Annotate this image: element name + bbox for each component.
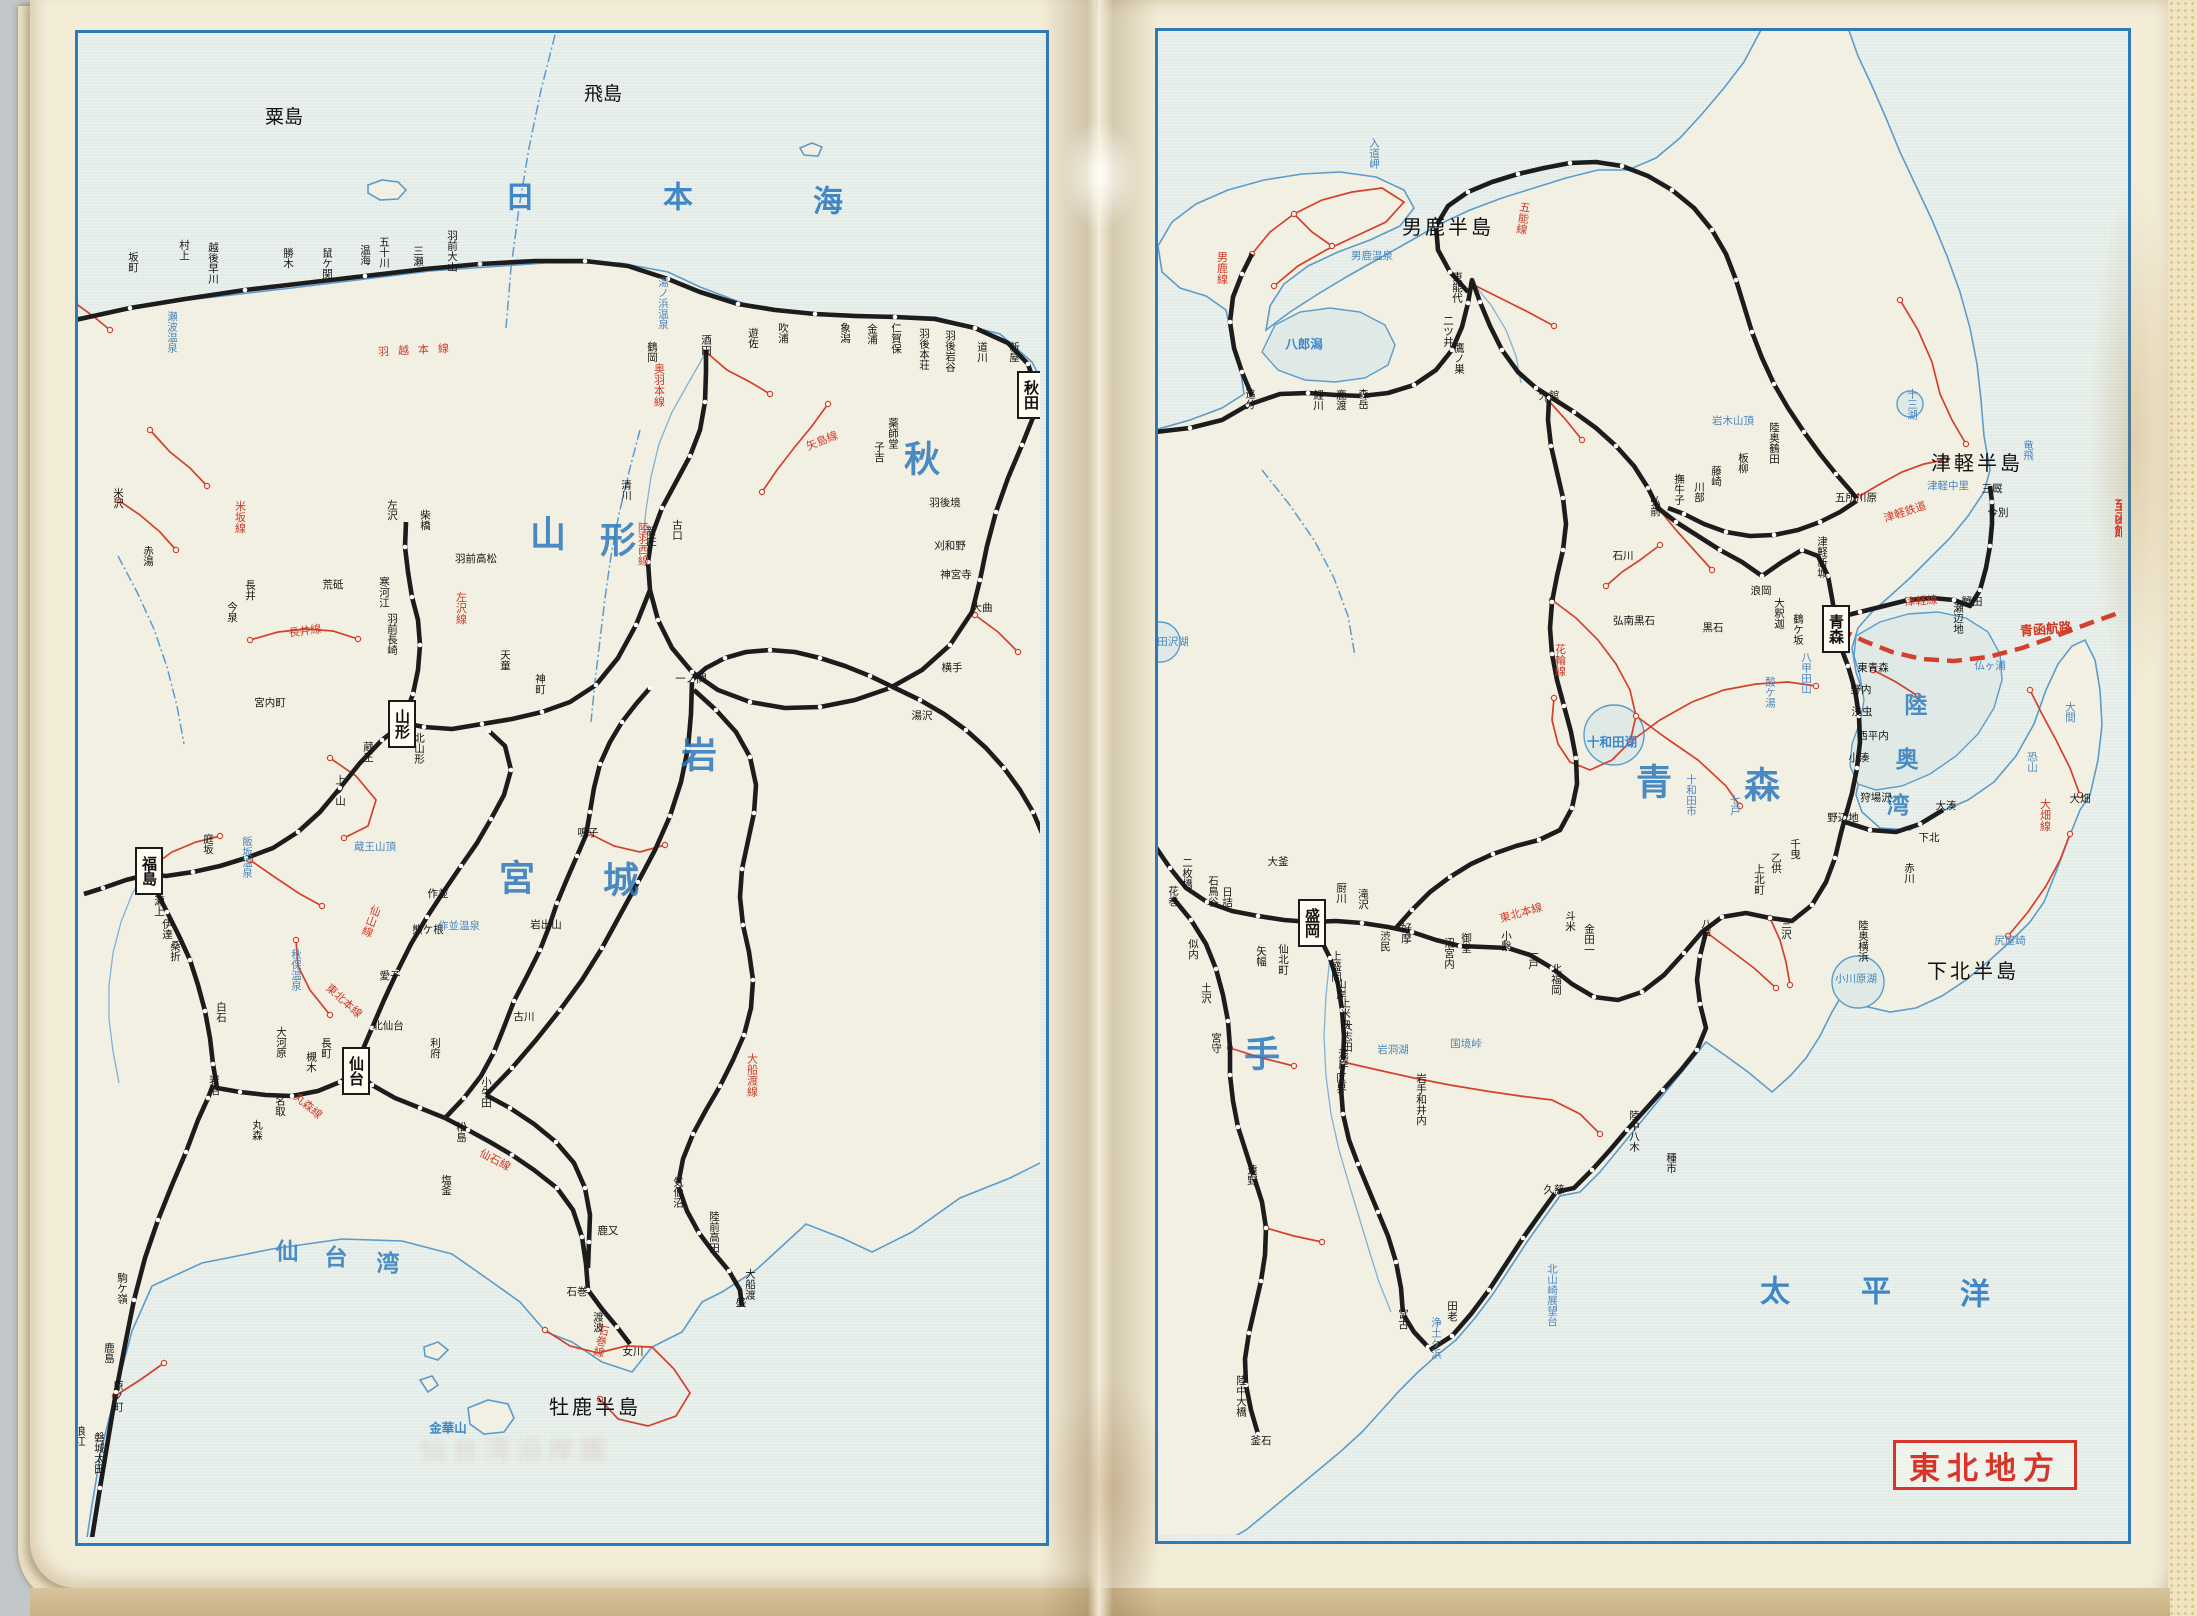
map-label: 庭坂	[202, 833, 214, 856]
station-dot	[1031, 810, 1036, 815]
map-label: 大志田	[1341, 1019, 1353, 1051]
station-dot	[1002, 766, 1007, 771]
map-label: 台	[325, 1244, 348, 1271]
station-dot	[1026, 362, 1031, 367]
branch-terminus	[1329, 243, 1334, 248]
map-label: 野辺地	[1827, 811, 1859, 824]
station-dot	[1394, 1260, 1399, 1265]
map-label: 大間	[2064, 701, 2076, 724]
map-label: 恐山	[2026, 752, 2038, 773]
station-dot	[1410, 908, 1415, 913]
map-label: 洋	[1960, 1278, 1990, 1313]
station-dot	[1988, 544, 1993, 549]
map-label: 瀬波温泉	[166, 310, 178, 353]
map-label: 金田一	[1583, 922, 1595, 954]
map-label: 鹿又	[598, 1224, 619, 1237]
map-label: 区界	[1335, 1073, 1347, 1095]
station-dot	[1466, 190, 1471, 195]
map-label: 岩沼	[208, 1074, 220, 1097]
map-label: 酸ケ湯	[1764, 675, 1776, 708]
branch-terminus	[327, 755, 332, 760]
branch-terminus	[1551, 323, 1556, 328]
map-label: 岩洞湖	[1377, 1043, 1409, 1056]
station-dot	[620, 720, 625, 725]
branch-terminus	[1319, 1239, 1324, 1244]
station-dot	[893, 315, 898, 320]
branch-terminus	[2067, 831, 2072, 836]
map-label: 岩手和井内	[1415, 1072, 1427, 1126]
map-label: 五所川原	[1835, 492, 1877, 504]
map-label: 白石	[215, 1001, 227, 1023]
map-label: 作並	[428, 887, 449, 900]
map-label: 男鹿半島	[1402, 215, 1494, 239]
map-label: 岩	[681, 736, 717, 777]
branch-terminus	[1633, 713, 1638, 718]
station-dot	[1168, 866, 1173, 871]
map-label: 遠野	[1246, 1164, 1258, 1186]
map-label: 北山崎展望台	[1546, 1264, 1558, 1328]
map-label: 五十川	[378, 236, 390, 268]
map-label: 渡波	[592, 1311, 604, 1334]
map-label: 下北半島	[1927, 959, 2019, 983]
map-label: 愛子	[380, 969, 401, 982]
map-label: 好摩	[1400, 923, 1412, 945]
station-dot	[425, 915, 430, 920]
map-label: 作並温泉	[438, 919, 480, 932]
station-dot	[1259, 1279, 1264, 1284]
station-dot	[1695, 1048, 1700, 1053]
station-dot	[973, 326, 978, 331]
map-label: 小牛田	[480, 1076, 492, 1108]
map-label: 青函航路	[2019, 619, 2073, 640]
map-label: 柴橋	[419, 509, 431, 532]
map-label: 形	[600, 521, 636, 562]
map-label: 秋	[904, 440, 940, 481]
station-dot	[1978, 588, 1983, 593]
branch-terminus	[319, 903, 324, 908]
map-label: 丸森	[251, 1119, 263, 1142]
map-label: 利府	[429, 1038, 441, 1060]
map-label: 城	[603, 861, 639, 902]
map-label: 陸奥鶴田	[1768, 421, 1780, 464]
station-dot	[1516, 172, 1521, 177]
map-label: 石川	[1613, 550, 1634, 562]
branch-terminus	[825, 401, 830, 406]
branch-terminus	[1291, 1063, 1296, 1068]
map-label: 浄土ケ浜	[1430, 1316, 1442, 1360]
station-dot	[128, 306, 133, 311]
branch-terminus	[341, 835, 346, 840]
branch-terminus	[1015, 649, 1020, 654]
city-box-label: 秋田	[1022, 379, 1040, 411]
railway-map-svg: 日本海仙台湾秋山形宮城岩粟島飛島牡鹿半島羽越本線奥羽本線米坂線長井線左沢線仙山線…	[0, 0, 2197, 1616]
map-label: 似内	[1187, 939, 1199, 961]
station-dot	[132, 1298, 137, 1303]
station-dot	[1376, 1210, 1381, 1215]
map-label: 浪江	[74, 1425, 86, 1447]
station-dot	[558, 1008, 563, 1013]
map-label: 黒石	[1703, 622, 1724, 634]
map-label: 太	[1760, 1275, 1791, 1310]
map-label: 花輪線	[1554, 643, 1567, 676]
map-label: 藤崎	[1710, 466, 1722, 487]
map-label: 左沢	[386, 499, 398, 522]
map-label: 小繋	[1500, 931, 1512, 952]
station-dot	[459, 864, 464, 869]
map-label: 松島	[455, 1121, 467, 1144]
map-label: 土沢	[1200, 982, 1212, 1005]
station-dot	[243, 288, 248, 293]
station-dot	[1818, 520, 1823, 525]
map-label: 滝沢	[1357, 889, 1369, 911]
map-label: 一ノ関	[675, 673, 707, 685]
map-label: 塩釜	[440, 1174, 452, 1196]
map-label: 気仙沼	[672, 1175, 684, 1208]
branch-terminus	[72, 300, 77, 305]
landmass	[800, 143, 822, 156]
station-dot	[492, 1050, 497, 1055]
station-dot	[156, 1218, 161, 1223]
station-dot	[964, 728, 969, 733]
map-label: 川部	[1693, 482, 1705, 504]
map-label: 森	[1744, 766, 1781, 807]
map-label: 野内	[1851, 683, 1872, 696]
map-label: 湯沢	[912, 709, 933, 722]
station-dot	[1834, 472, 1839, 477]
map-label: 刈和野	[934, 539, 966, 552]
station-dot	[1189, 918, 1194, 923]
station-dot	[1614, 444, 1619, 449]
map-label: 道川	[976, 341, 988, 363]
station-dot	[1682, 951, 1687, 956]
station-dot	[489, 817, 494, 822]
station-dot	[691, 1132, 696, 1137]
map-label: 蔵王	[362, 741, 374, 763]
map-label: 二枚橋	[1181, 857, 1193, 889]
station-dot	[1240, 370, 1245, 375]
map-label: 羽前大山	[446, 230, 458, 272]
station-dot	[480, 722, 485, 727]
map-label: 弘前	[1649, 496, 1661, 518]
branch-terminus	[542, 1327, 547, 1332]
branch-terminus	[204, 483, 209, 488]
scanned-atlas-spread: { "stamp_label": "東北地方", "map": { "label…	[0, 0, 2197, 1616]
map-label: 女川	[623, 1345, 644, 1358]
station-dot	[868, 674, 873, 679]
station-dot	[403, 545, 408, 550]
station-dot	[1772, 382, 1777, 387]
station-dot	[1572, 410, 1577, 415]
station-dot	[1562, 704, 1567, 709]
station-dot	[418, 643, 423, 648]
map-label: 鳴子	[578, 826, 599, 839]
branch-terminus	[107, 327, 112, 332]
station-dot	[948, 643, 953, 648]
station-dot	[296, 830, 301, 835]
station-dot	[1574, 756, 1579, 761]
station-dot	[703, 400, 708, 405]
map-label: 津軽中里	[1927, 479, 1969, 492]
map-label: 神宮寺	[940, 568, 972, 581]
station-dot	[338, 1080, 343, 1085]
landmass	[424, 1342, 448, 1360]
station-dot	[1214, 967, 1219, 972]
station-dot	[588, 810, 593, 815]
map-label: 飯坂温泉	[241, 835, 253, 878]
map-label: 手	[1244, 1035, 1280, 1076]
map-label: 津軽新城	[1816, 536, 1828, 579]
map-label: 大湊	[1936, 799, 1958, 812]
station-dot	[1226, 1019, 1231, 1024]
station-dot	[1640, 990, 1645, 995]
map-label: 陸前高田	[708, 1210, 720, 1253]
city-box-label: 山形	[393, 709, 411, 740]
map-label: 長井	[244, 580, 256, 602]
map-label: 古川	[514, 1010, 535, 1023]
map-label: 撫牛子	[1673, 472, 1685, 504]
map-label: 金浦	[866, 323, 878, 346]
branch-terminus	[759, 489, 764, 494]
map-label: 平	[1861, 1275, 1891, 1310]
map-label: 羽後境	[929, 496, 961, 509]
station-dot	[1846, 664, 1851, 669]
station-dot	[238, 1090, 243, 1095]
map-label: 仙	[276, 1238, 299, 1265]
map-label: 十和田湖	[1587, 735, 1637, 750]
station-dot	[656, 618, 661, 623]
map-label: 田老	[1446, 1301, 1458, 1322]
map-label: 男鹿温泉	[1351, 249, 1393, 262]
station-dot	[1760, 574, 1765, 579]
station-dot	[1674, 520, 1679, 525]
map-label: 駒ケ嶺	[116, 1272, 128, 1304]
branch-terminus	[1963, 441, 1968, 446]
station-dot	[752, 811, 757, 816]
map-label: 田	[1104, 404, 1140, 445]
station-dot	[634, 623, 639, 628]
station-dot	[1570, 806, 1575, 811]
station-dot	[512, 999, 517, 1004]
map-label: 米沢	[112, 487, 124, 510]
station-dot	[741, 923, 746, 928]
map-label: 岩木山頂	[1712, 414, 1754, 427]
station-dot	[978, 578, 983, 583]
map-label: 鶴岡	[646, 341, 658, 364]
station-dot	[1734, 278, 1739, 283]
map-label: 八戸	[1700, 919, 1712, 941]
station-dot	[1682, 512, 1687, 517]
map-label: 花巻	[1167, 885, 1179, 907]
map-label: 湾	[377, 1250, 400, 1277]
map-label: 斗米	[1564, 911, 1576, 933]
map-label: 竜飛	[2022, 439, 2034, 462]
station-dot	[994, 510, 999, 515]
map-label: 天童	[499, 650, 511, 671]
station-dot	[818, 656, 823, 661]
map-label: 酒田	[700, 334, 712, 356]
station-dot	[742, 1033, 747, 1038]
map-label: 伊達	[161, 919, 173, 940]
station-dot	[510, 1066, 515, 1071]
station-dot	[418, 1106, 423, 1111]
map-label: 十和田市	[1685, 773, 1697, 817]
station-dot	[1710, 228, 1715, 233]
station-dot	[1698, 1002, 1703, 1007]
station-dot	[1236, 1125, 1241, 1130]
station-dot	[540, 710, 545, 715]
map-label: 盛	[736, 1296, 747, 1309]
map-label: 磐城太田	[93, 1431, 105, 1474]
landmass	[420, 1376, 438, 1392]
map-label: 鷹ノ巣	[1453, 341, 1465, 374]
map-label: 津軽線	[1904, 592, 1938, 608]
station-dot	[1549, 444, 1554, 449]
station-dot	[575, 854, 580, 859]
map-label: 鹿島	[103, 1342, 115, 1365]
branch-terminus	[2027, 687, 2032, 692]
map-label: 釜石	[1251, 1434, 1272, 1447]
branch-terminus	[1271, 283, 1276, 288]
station-dot	[718, 1084, 723, 1089]
station-dot	[748, 755, 753, 760]
station-dot	[410, 595, 415, 600]
station-dot	[380, 738, 385, 743]
station-dot	[1698, 954, 1703, 959]
branch-terminus	[327, 1012, 332, 1017]
map-label: 横手	[942, 661, 963, 674]
station-dot	[1466, 301, 1471, 306]
branch-terminus	[1657, 542, 1662, 547]
station-dot	[1990, 500, 1995, 505]
station-dot	[1521, 1236, 1526, 1241]
station-dot	[697, 1231, 702, 1236]
map-label: 清川	[620, 479, 632, 501]
station-dot	[1044, 843, 1049, 848]
station-dot	[1228, 320, 1233, 325]
map-label: 東青森	[1857, 661, 1889, 674]
station-dot	[740, 867, 745, 872]
station-dot	[1537, 838, 1542, 843]
station-dot	[1228, 1073, 1233, 1078]
station-dot	[768, 648, 773, 653]
station-dot	[1768, 916, 1773, 921]
station-dot	[1772, 533, 1777, 538]
map-label: 羽前長崎	[386, 613, 398, 655]
station-dot	[370, 1083, 375, 1088]
city-box-label: 仙台	[347, 1055, 365, 1087]
map-label: 尻屋崎	[1994, 934, 2026, 947]
station-dot	[1858, 610, 1863, 615]
map-label: 越後早川	[207, 241, 219, 284]
branch-terminus	[1773, 985, 1778, 990]
map-label: 蟹田	[1962, 595, 1983, 608]
station-dot	[818, 705, 823, 710]
station-dot	[648, 686, 653, 691]
map-label: 陸奥横浜	[1857, 919, 1869, 963]
map-label: 羽前高松	[455, 552, 497, 565]
station-dot	[1724, 530, 1729, 535]
station-dot	[510, 1153, 515, 1158]
station-dot	[1802, 430, 1807, 435]
branch-terminus	[1603, 583, 1608, 588]
map-label: 今別	[1988, 506, 2009, 519]
station-dot	[813, 312, 818, 317]
station-dot	[538, 948, 543, 953]
station-dot	[411, 692, 416, 697]
station-dot	[1855, 766, 1860, 771]
map-label: 神町	[534, 673, 546, 695]
map-label: 宮守	[1210, 1032, 1222, 1055]
station-dot	[1550, 600, 1555, 605]
branch-terminus	[247, 637, 252, 642]
station-dot	[462, 1096, 467, 1101]
map-label: 小川原湖	[1835, 973, 1877, 985]
map-label: 奥羽本線	[653, 362, 666, 407]
station-dot	[598, 762, 603, 767]
station-dot	[748, 700, 753, 705]
station-dot	[1661, 1088, 1666, 1093]
map-label: 仙北町	[1277, 942, 1289, 974]
station-dot	[587, 1240, 592, 1245]
station-dot	[1487, 1288, 1492, 1293]
station-dot	[1256, 914, 1261, 919]
map-label: 左沢線	[455, 591, 468, 624]
map-label: 久慈	[1544, 1183, 1565, 1196]
map-label: 吹浦	[777, 322, 789, 345]
city-box-label: 青森	[1827, 613, 1845, 645]
map-label: 大畑線	[2039, 797, 2052, 831]
map-label: 飛島	[584, 83, 622, 105]
map-label: 日	[505, 181, 535, 216]
branch-terminus	[1709, 567, 1714, 572]
map-label: 鼠ケ関	[321, 246, 333, 279]
map-label: 鹿渡	[1335, 389, 1347, 412]
map-label: 鶴ケ坂	[1792, 612, 1804, 645]
map-label: 新屋	[1008, 341, 1020, 364]
station-dot	[1561, 496, 1566, 501]
station-dot	[1720, 915, 1725, 920]
station-dot	[668, 814, 673, 819]
map-label: 羽後岩谷	[944, 330, 956, 373]
map-label: 名取	[274, 1095, 286, 1118]
map-label: 御堂	[1460, 932, 1472, 954]
branch-terminus	[1597, 1131, 1602, 1136]
station-dot	[508, 1106, 513, 1111]
map-label: 本	[663, 181, 693, 216]
map-label: 新発田	[52, 245, 64, 277]
map-label: 八甲田山	[1800, 652, 1812, 694]
branch-terminus	[1579, 437, 1584, 442]
branch-terminus	[293, 937, 298, 942]
branch-terminus	[173, 547, 178, 552]
branch-terminus	[355, 636, 360, 641]
station-dot	[1592, 995, 1597, 1000]
city-box-label: 盛岡	[1303, 907, 1321, 939]
branch-terminus	[1897, 297, 1902, 302]
map-label: 宮古	[1397, 1308, 1409, 1331]
map-label: 子吉	[873, 442, 885, 464]
map-label: 西平内	[1857, 729, 1889, 742]
station-dot	[188, 958, 193, 963]
map-label: 象潟	[839, 323, 851, 345]
station-dot	[1478, 300, 1483, 305]
station-dot	[615, 1325, 620, 1330]
station-dot	[1306, 391, 1311, 396]
map-label: 厨川	[1335, 883, 1347, 904]
map-label: 石巻	[567, 1286, 588, 1298]
map-label: 狩場沢	[1860, 791, 1892, 804]
station-dot	[555, 1186, 560, 1191]
